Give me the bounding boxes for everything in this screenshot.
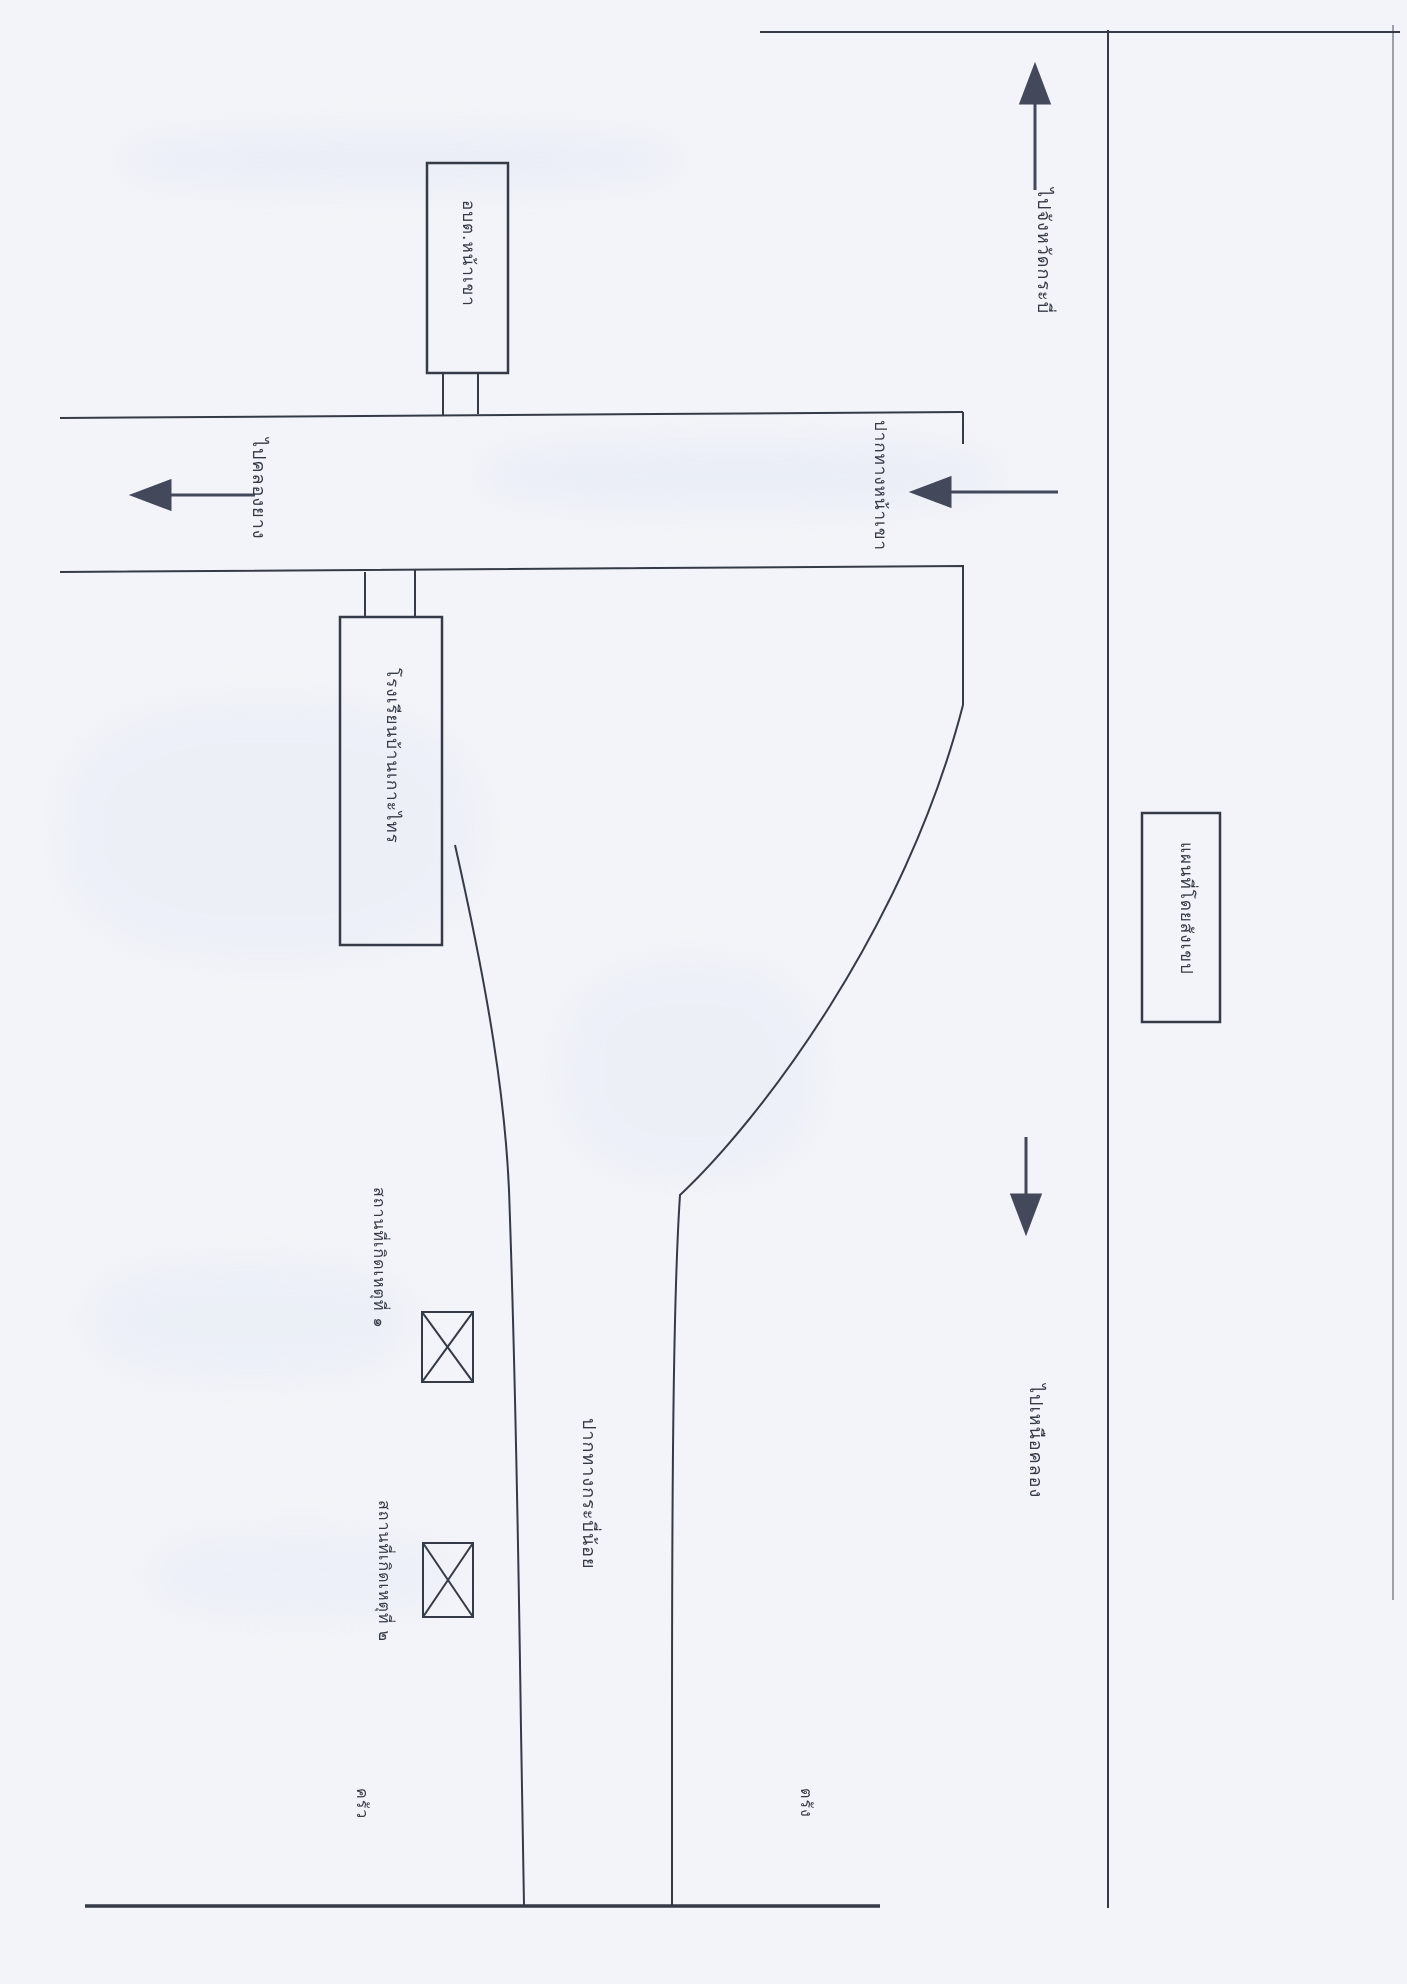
note-bottom-right: ตรัง	[796, 1788, 816, 1818]
scene-1-label: สถานที่เกิดเหตุที่ ๑	[369, 1187, 389, 1329]
ew-road-bottom-edge	[60, 566, 963, 705]
arrow-left-khlong-yang-icon	[133, 481, 255, 509]
ew-road-top-edge	[60, 412, 963, 418]
sao-office-label: อบต.หน้าเขา	[457, 200, 478, 307]
road-label-to-krabi: ไปจังหวัดกระบี่	[1032, 188, 1054, 314]
road-label-to-khlong-yang: ไปคลองยาง	[247, 438, 269, 540]
road-label-junction-na-khao: ปากทางหน้าเขา	[869, 420, 890, 551]
scene-1-crossed-box-icon	[422, 1312, 473, 1382]
curved-road-west-edge	[455, 845, 524, 1905]
scene-2-crossed-box-icon	[423, 1543, 473, 1617]
scene-2-label: สถานที่เกิดเหตุที่ ๒	[374, 1500, 394, 1642]
road-label-to-nuea-khlong: ไปเหนือคลอง	[1024, 1384, 1046, 1498]
arrow-up-highway-icon	[1021, 66, 1049, 190]
school-connectors	[365, 570, 415, 617]
arrow-left-junction-icon	[913, 478, 1058, 506]
legend-label: แผนที่โดยสังเขป	[1175, 842, 1196, 975]
arrow-down-highway-icon	[1012, 1137, 1040, 1232]
school-label: โรงเรียนบ้านเกาะไทร	[381, 668, 402, 844]
sao-office-connectors	[443, 373, 478, 416]
road-label-junction-krabi-noi: ปากทางกระบี่น้อย	[577, 1418, 599, 1570]
sketch-map-drawing	[0, 0, 1407, 1984]
curved-road-east-edge	[672, 705, 963, 1905]
note-bottom-left: ครัว	[352, 1788, 372, 1819]
scanned-sketch-map-page: { "map": { "buildings": { "sao_box_label…	[0, 0, 1407, 1984]
